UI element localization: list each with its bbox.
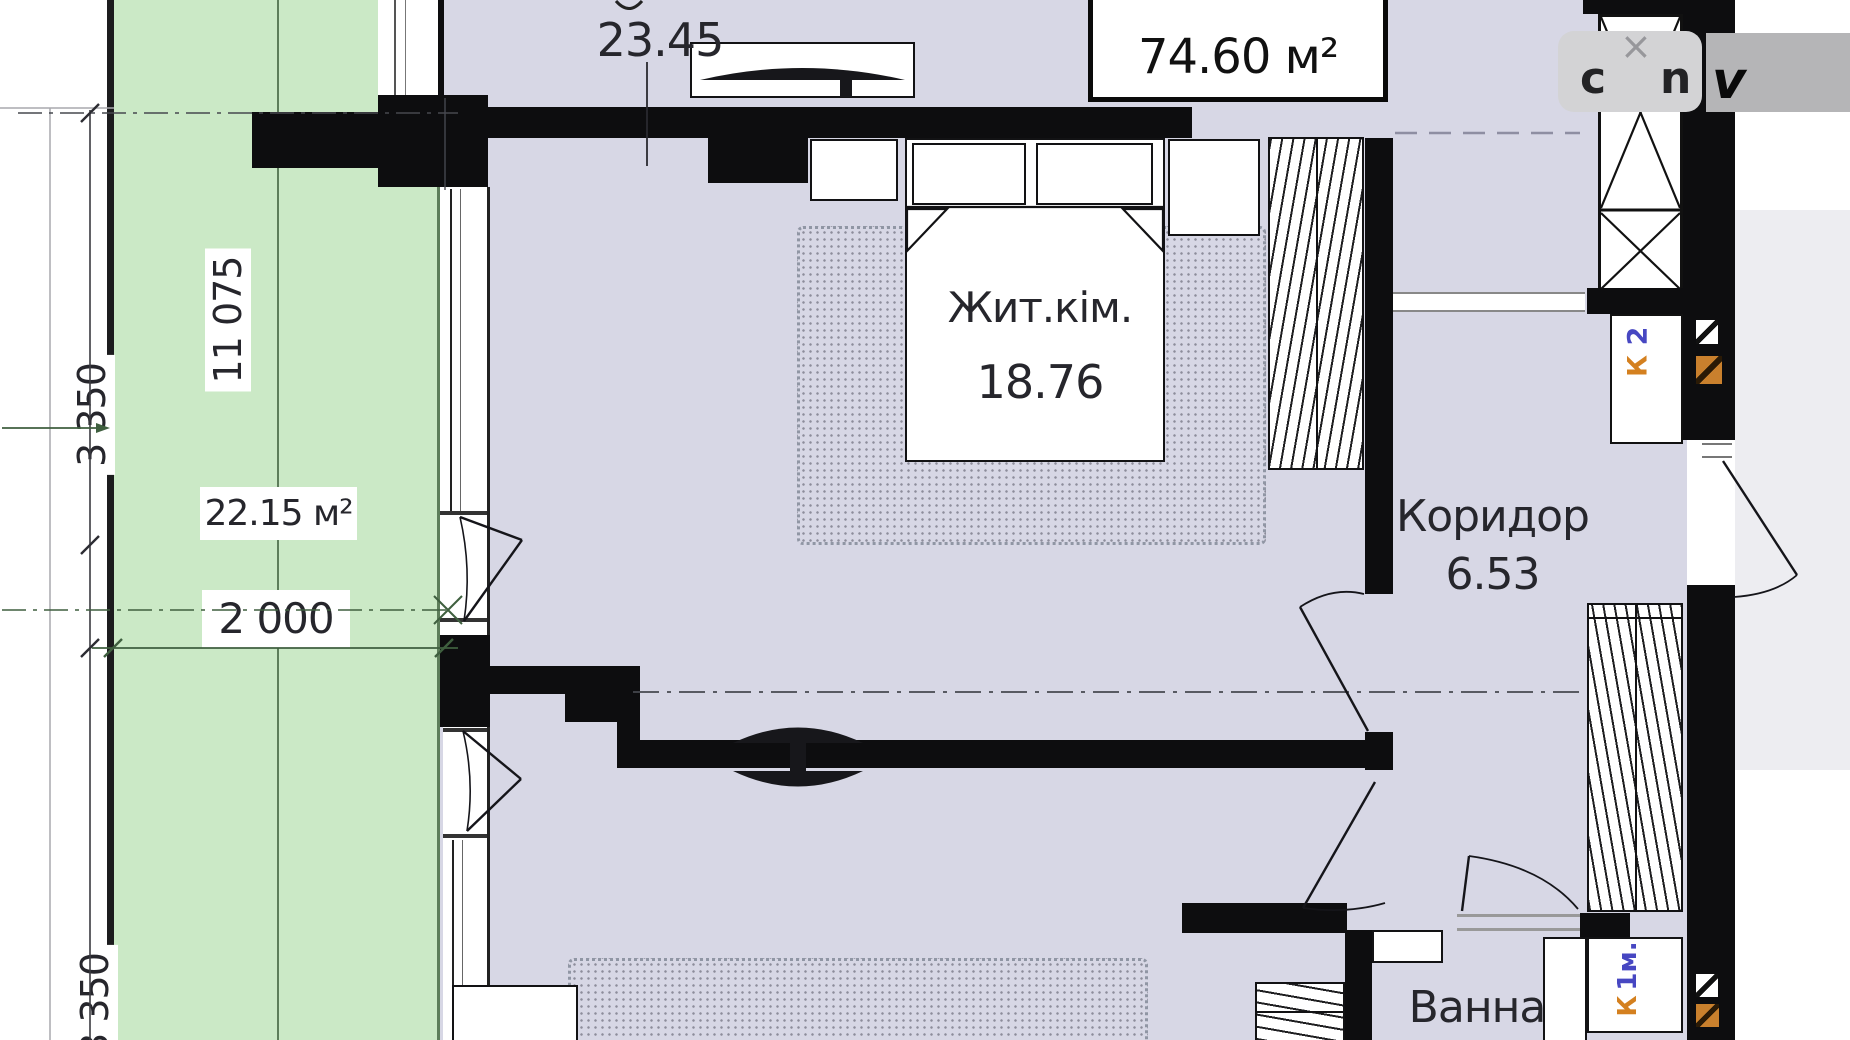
overlay-logo-fragment[interactable]: v (1706, 33, 1850, 112)
floor-plan-canvas: 74.60 м² 23.45 Жит.кім. 18.76 Коридор 6.… (0, 0, 1850, 1040)
bath-door-threshold (1457, 914, 1580, 917)
wardrobe-divider (1316, 139, 1318, 468)
glazing-line (394, 0, 396, 95)
overlay-text-fragment-right: n (1660, 53, 1691, 104)
dim-balcony-width: 2 000 (202, 590, 350, 648)
total-area-badge: 74.60 м² (1088, 0, 1388, 102)
balcony-glazing-left-line (107, 0, 114, 1040)
wall-bedroom-north (440, 107, 1192, 138)
neighbor-glazing-column (378, 0, 438, 95)
wall-middle-connector (617, 694, 640, 744)
bedroom-area-label: 18.76 (920, 355, 1160, 409)
room-top-area-label: 23.45 (575, 14, 745, 66)
bottom-room-rug (568, 958, 1148, 1040)
wall-duct-k2-base (1587, 288, 1685, 314)
wardrobe-divider (1257, 1011, 1343, 1013)
duct-k1m-letter: К (1613, 995, 1643, 1016)
wardrobe-bedroom (1268, 137, 1364, 470)
wall-bath-north (1182, 903, 1347, 933)
furniture-bottom-left (452, 985, 578, 1040)
dim-left-upper: 3 350 (69, 355, 115, 475)
wall-bath-stub (1580, 913, 1630, 937)
wall-marker-orange (1694, 1002, 1721, 1029)
room-edge-line-top (438, 0, 444, 95)
close-icon[interactable]: × (1620, 27, 1652, 65)
wall-bath-west (1345, 930, 1372, 1040)
overlay-toast[interactable]: × c n (1558, 31, 1702, 112)
window-sill-mark (440, 618, 487, 622)
pillow (1036, 143, 1153, 205)
window-sill-mark (443, 834, 487, 838)
bedroom-name-label: Жит.кім. (920, 283, 1160, 333)
bathroom-name-label: Ванна (1392, 982, 1562, 1034)
total-area-value: 74.60 м² (1138, 29, 1338, 97)
dim-balcony-length: 11 075 (205, 249, 251, 392)
wall-marker-white (1694, 972, 1720, 999)
corridor-passage-band (1393, 292, 1585, 312)
duct-k2-index: 2 (1623, 327, 1654, 346)
duct-k2-letter: К (1623, 355, 1654, 377)
wall-middle-lower (617, 740, 1367, 768)
wardrobe-divider (1635, 605, 1637, 910)
overlay-text-fragment-left: c (1580, 53, 1606, 104)
bath-door-threshold (1457, 928, 1580, 931)
wall-balcony-divider (252, 112, 378, 168)
dim-left-lower: 3 350 (72, 945, 118, 1040)
nightstand-right (1168, 139, 1260, 236)
corridor-area-label: 6.53 (1390, 550, 1595, 600)
logo-glyph: v (1712, 51, 1746, 111)
wall-marker-orange (1694, 354, 1724, 386)
window-sill-mark (443, 728, 487, 732)
wall-corridor-west-block (1365, 732, 1393, 770)
wall-step-niche (708, 137, 808, 183)
balcony-strip-top (114, 0, 378, 95)
pillow (912, 143, 1026, 205)
wall-marker-white (1694, 318, 1720, 346)
glazing-line (450, 189, 452, 511)
glazing-line (460, 189, 461, 511)
wall-band-top-right (1583, 0, 1688, 14)
nightstand-left (810, 139, 898, 201)
wardrobe-bottom-room (1255, 982, 1345, 1040)
wardrobe-corridor (1587, 603, 1683, 912)
glazing-column-bedroom (440, 187, 490, 635)
duct-k1m-index: 1м. (1613, 941, 1643, 990)
glazing-line (405, 0, 406, 95)
corridor-name-label: Коридор (1390, 488, 1595, 546)
outside-neighbor-zone (1735, 210, 1850, 770)
window-sill-mark (440, 511, 487, 515)
balcony-area-label: 22.15 м² (200, 487, 357, 540)
wall-corridor-west (1365, 138, 1393, 594)
bath-partition (1372, 930, 1443, 963)
